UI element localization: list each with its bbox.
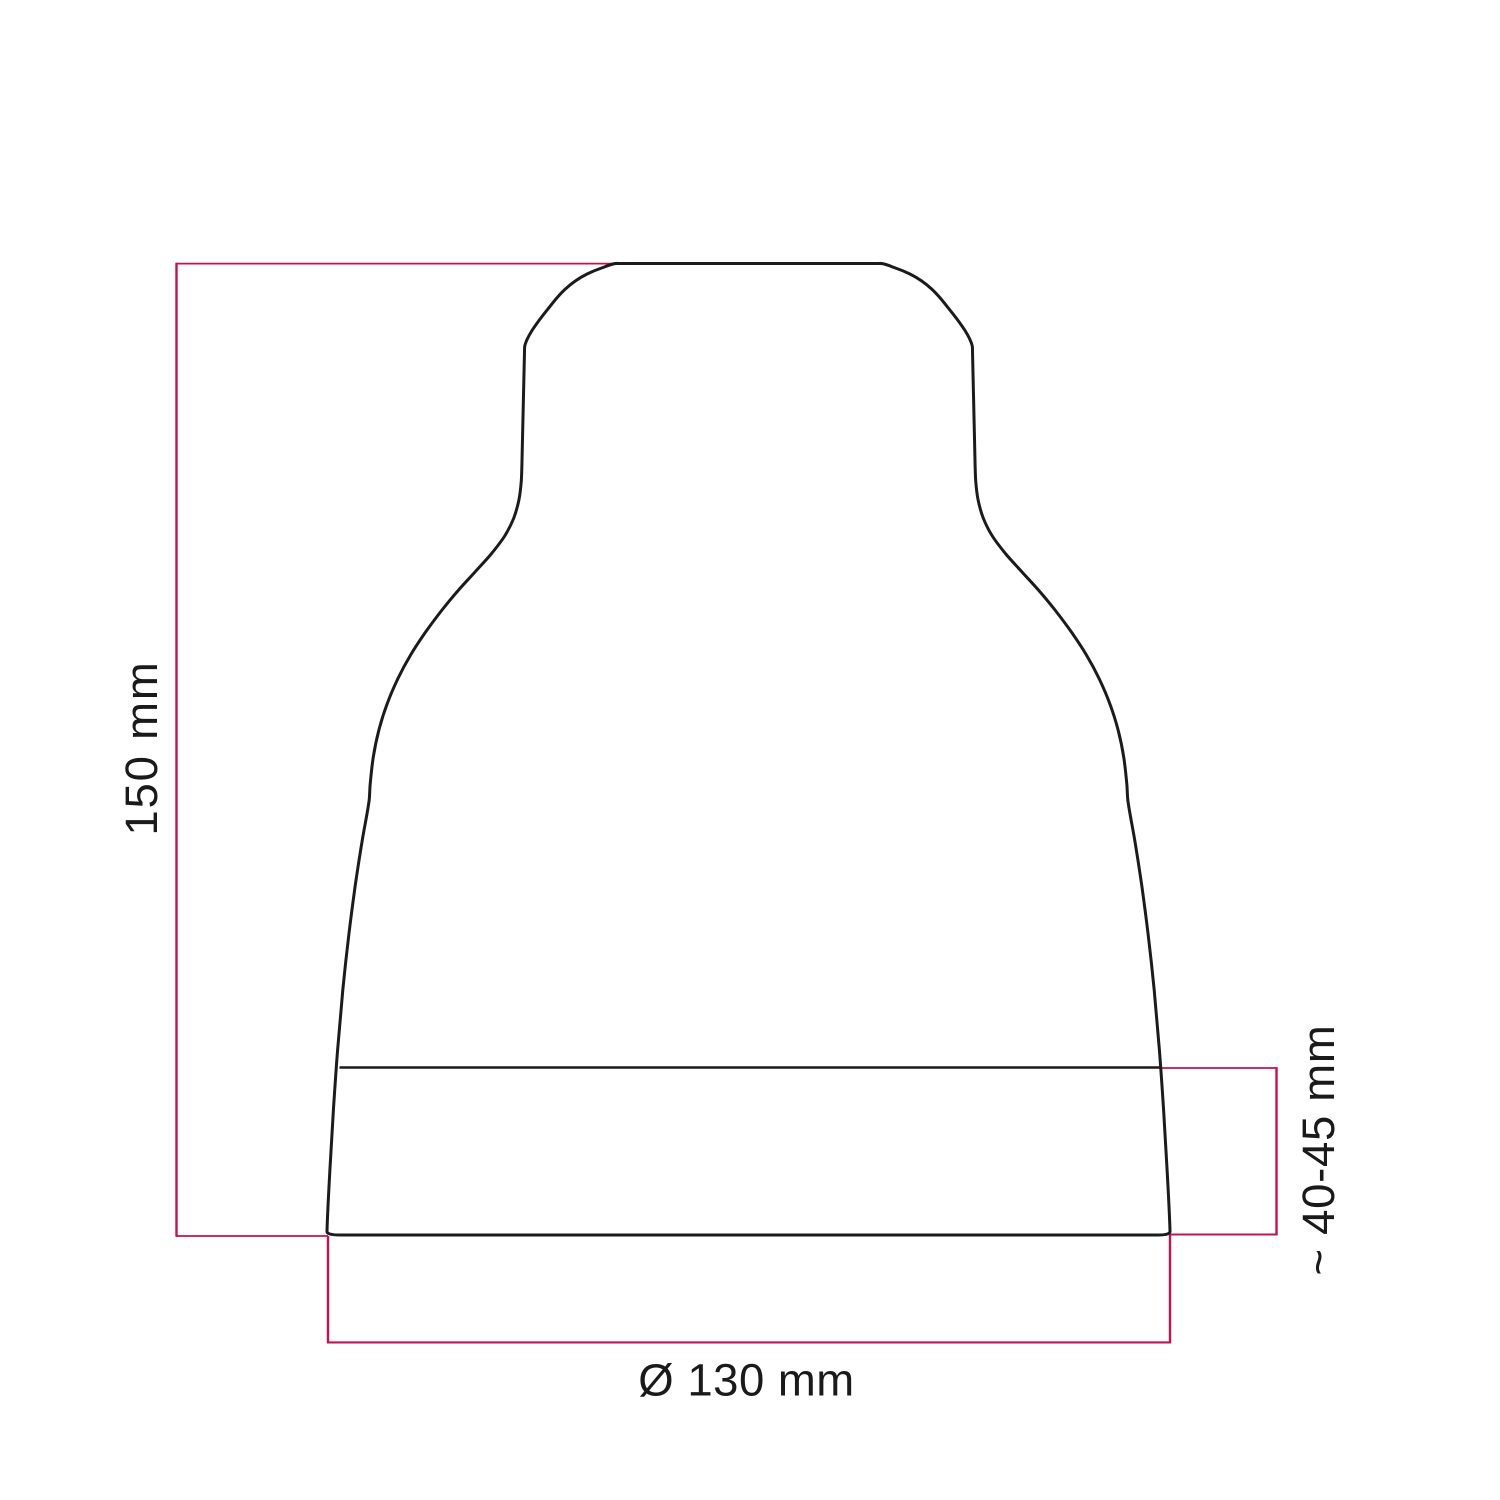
svg-text:~ 40-45 mm: ~ 40-45 mm bbox=[1293, 1024, 1344, 1275]
svg-text:Ø 130 mm: Ø 130 mm bbox=[638, 1355, 854, 1406]
svg-text:150 mm: 150 mm bbox=[116, 660, 167, 835]
